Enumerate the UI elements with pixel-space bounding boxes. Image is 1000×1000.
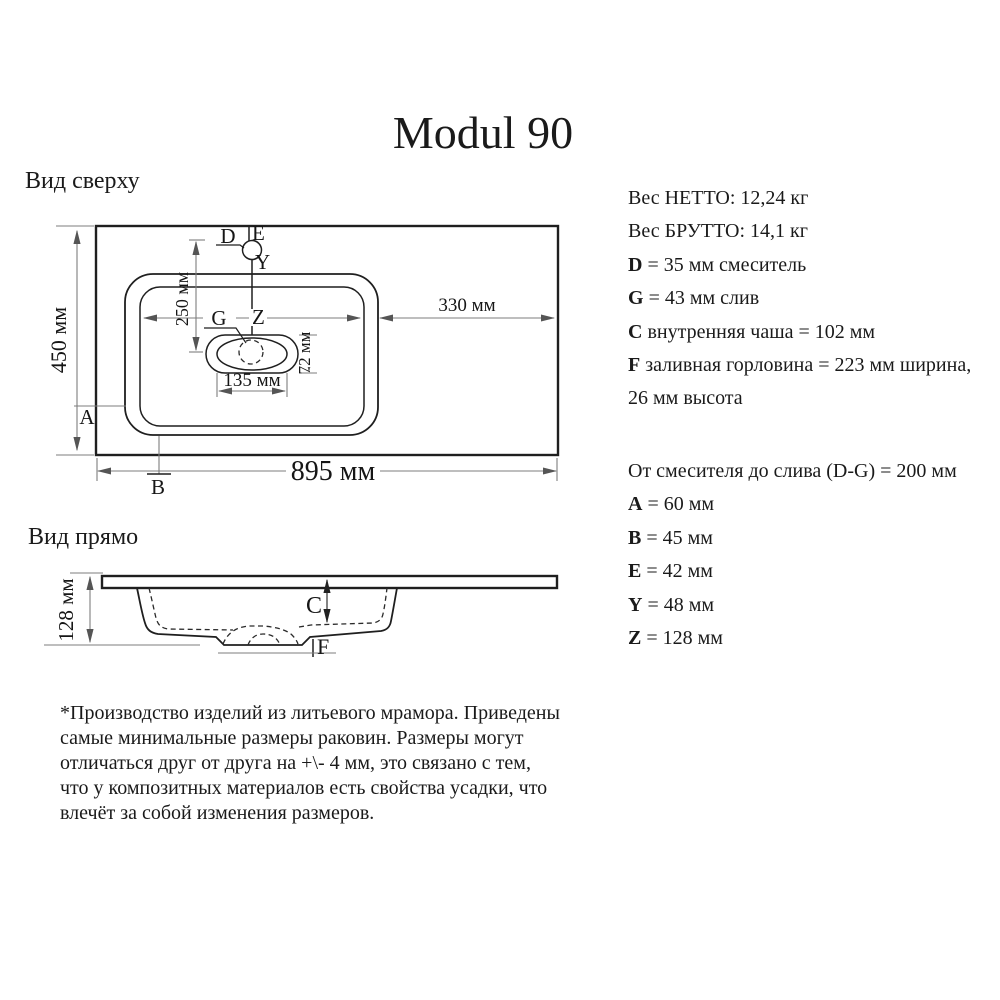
note-line: что у композитных материалов есть свойст… — [60, 776, 560, 801]
label-e: E — [252, 221, 265, 245]
spec-block-dimensions: От смесителя до слива (D-G) = 200 мм A =… — [628, 455, 957, 655]
front-view-heading: Вид прямо — [28, 524, 138, 551]
note-line: самые минимальные размеры раковин. Разме… — [60, 726, 560, 751]
note-line: отличаться друг от друга на +\- 4 мм, эт… — [60, 751, 560, 776]
spec-block-weights: Вес НЕТТО: 12,24 кг Вес БРУТТО: 14,1 кг … — [628, 182, 971, 416]
label-d: D — [220, 224, 235, 248]
dim-fv-height-label: 128 мм — [54, 578, 78, 641]
dim-drain-w-label: 135 мм — [223, 370, 280, 391]
label-g: G — [211, 306, 226, 330]
label-a: A — [79, 405, 95, 429]
spec-line: 26 мм высота — [628, 382, 971, 415]
spec-line: G = 43 мм слив — [628, 282, 971, 315]
dim-drain-h-label: 72 мм — [295, 331, 314, 374]
dim-width-label: 895 мм — [291, 456, 376, 487]
front-view-drawing: 128 мм C F — [44, 573, 557, 659]
spec-line: Z = 128 мм — [628, 622, 957, 655]
top-view-heading: Вид сверху — [25, 168, 140, 195]
spec-line: F заливная горловина = 223 мм ширина, — [628, 349, 971, 382]
spec-line: Y = 48 мм — [628, 589, 957, 622]
label-z: Z — [252, 305, 265, 329]
spec-line: B = 45 мм — [628, 522, 957, 555]
spec-line: Вес БРУТТО: 14,1 кг — [628, 215, 971, 248]
top-view-drawing: 450 мм D E Y 250 мм 330 мм — [46, 221, 558, 499]
basin-profile — [137, 588, 397, 645]
spec-line: A = 60 мм — [628, 488, 957, 521]
countertop-outline — [96, 226, 558, 455]
countertop-profile — [102, 576, 557, 588]
label-c: C — [306, 593, 322, 619]
label-y: Y — [255, 250, 270, 274]
spec-line: Вес НЕТТО: 12,24 кг — [628, 182, 971, 215]
label-f: F — [317, 634, 329, 659]
spec-line: C внутренняя чаша = 102 мм — [628, 316, 971, 349]
dim-right-label: 330 мм — [438, 295, 495, 316]
spec-line: От смесителя до слива (D-G) = 200 мм — [628, 455, 957, 488]
drain-recess-outer — [206, 335, 298, 373]
spec-line: D = 35 мм смеситель — [628, 249, 971, 282]
note-line: влечёт за собой изменения размеров. — [60, 801, 560, 826]
basin-hidden-edge — [149, 588, 233, 630]
production-note: *Производство изделий из литьевого мрамо… — [60, 701, 560, 826]
label-b: B — [151, 475, 165, 499]
drain-boss-hidden — [248, 634, 280, 645]
spec-line: E = 42 мм — [628, 555, 957, 588]
dim-height-label: 450 мм — [46, 307, 71, 373]
note-line: *Производство изделий из литьевого мрамо… — [60, 701, 560, 726]
page-title: Modul 90 — [393, 106, 573, 159]
drain-boss-hidden — [223, 626, 298, 644]
spec-sheet: 450 мм D E Y 250 мм 330 мм — [0, 0, 1000, 1000]
